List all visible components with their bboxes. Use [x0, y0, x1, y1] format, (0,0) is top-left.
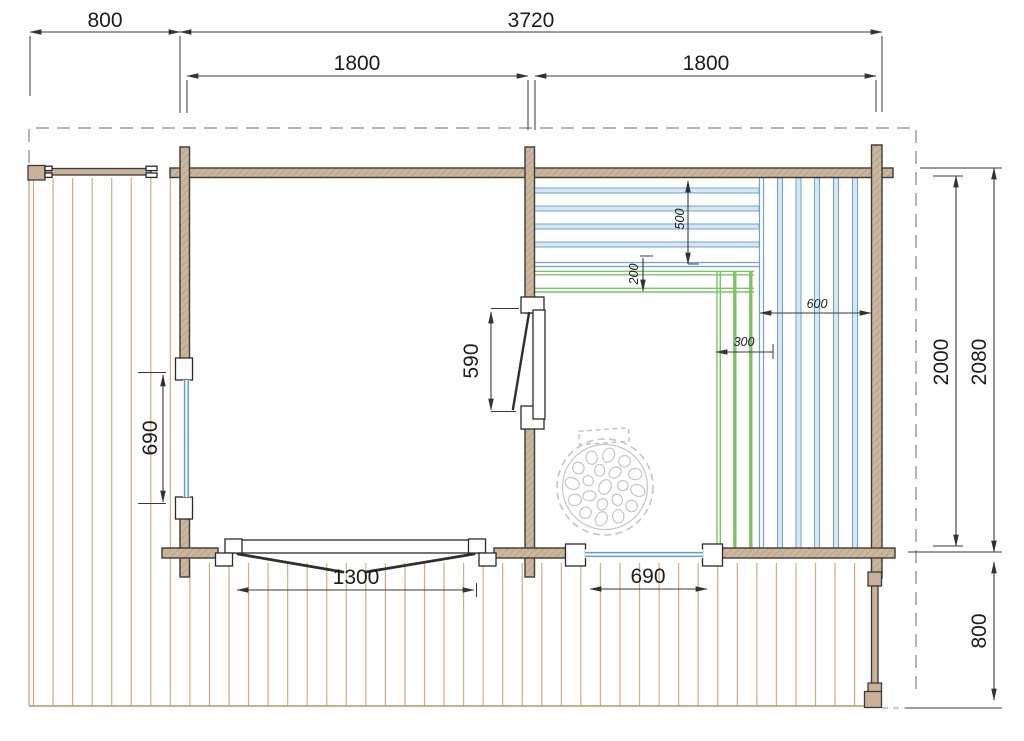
door-jamb [479, 553, 496, 566]
window-jamb [566, 544, 586, 566]
door-jamb [216, 553, 233, 566]
top-railing [45, 169, 151, 176]
railing-bracket [45, 173, 52, 177]
railing-bracket [146, 166, 157, 170]
floor-plan-canvas: 800 3720 1800 1800 690 590 500 200 600 [0, 0, 1024, 741]
dim-label-bench-side-width: 600 [807, 297, 828, 311]
dim-label-bench-top-depth: 500 [673, 209, 687, 230]
door-leaf [513, 313, 529, 409]
dim-label-room-left-width: 1800 [334, 52, 381, 75]
dim-label-entry-door: 1300 [333, 566, 380, 589]
bottom-wall-left [162, 548, 218, 558]
left-wall-upper [180, 147, 190, 360]
railing-bracket [146, 173, 157, 177]
dim-label-front-window: 690 [630, 565, 665, 588]
door-leaf-right [366, 554, 474, 572]
stove [557, 428, 653, 535]
left-window [176, 358, 193, 519]
door-jamb [469, 539, 486, 553]
front-window [566, 544, 723, 566]
dim-label-total-width: 3720 [508, 9, 555, 32]
upper-bench-blue [534, 188, 759, 267]
dim-label-bench-step-width: 300 [734, 335, 755, 349]
left-wall-lower [180, 517, 190, 577]
railing-bracket [868, 683, 882, 692]
cabin-walls [162, 145, 895, 578]
dim-label-sauna-door: 590 [460, 343, 483, 378]
sauna-door [513, 297, 545, 429]
right-wall [872, 145, 883, 578]
railing-connector-right [868, 572, 882, 586]
dim-label-side-window: 690 [139, 420, 162, 455]
bottom-wall-middle [494, 548, 567, 558]
side-bench-blue [760, 178, 858, 548]
right-railing [872, 586, 879, 686]
dim-label-inner-depth: 2000 [930, 339, 953, 386]
door-jamb [225, 539, 242, 553]
bottom-wall-right [722, 548, 895, 558]
dim-label-room-right-width: 1800 [683, 52, 730, 75]
window-jamb [176, 497, 193, 519]
stove-stones [563, 446, 647, 528]
corner-post-top-left [28, 166, 45, 181]
dim-label-deck-left-width: 800 [87, 9, 122, 32]
window-jamb [703, 544, 723, 566]
dim-label-front-deck-depth: 800 [968, 613, 991, 648]
railing-bracket [45, 166, 52, 170]
dim-label-total-depth: 2080 [968, 339, 991, 386]
floor-plan-page: 800 3720 1800 1800 690 590 500 200 600 [0, 0, 1024, 741]
sauna-benches [534, 178, 858, 548]
door-frame [232, 540, 480, 553]
partition-wall-upper [525, 147, 535, 313]
window-jamb [176, 358, 193, 380]
door-panel [533, 310, 545, 419]
dim-label-bench-step-depth: 200 [627, 264, 641, 286]
corner-post-bottom-right [865, 692, 882, 708]
